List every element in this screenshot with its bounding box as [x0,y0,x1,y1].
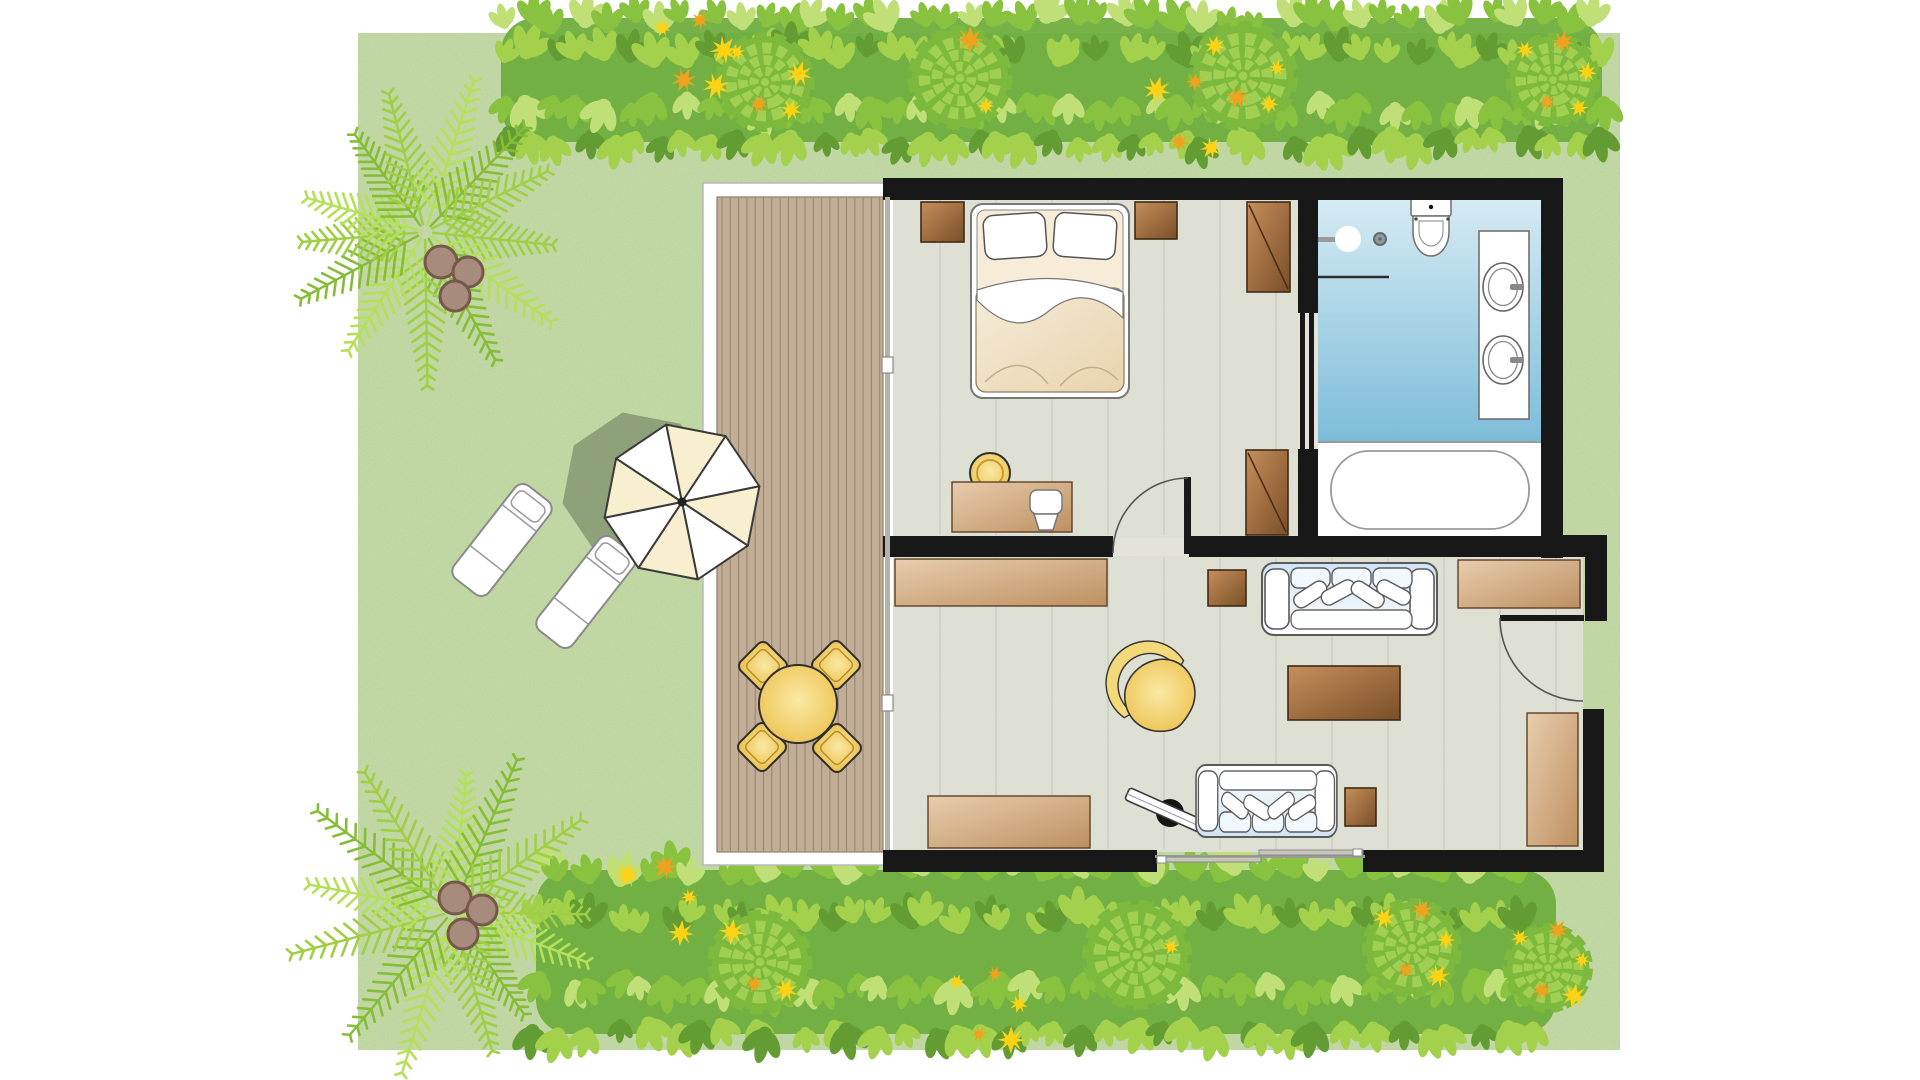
sofa-south [1196,765,1337,837]
tall-cabinet [1527,713,1578,846]
toilet [1411,199,1451,256]
floor-plan-canvas [0,0,1920,1080]
wardrobe-north [1247,202,1290,292]
outdoor-dining-table [759,665,837,743]
side-table-south [1345,788,1376,826]
double-bed [971,204,1129,398]
pillow-right [1053,212,1118,260]
sideboard-south [928,796,1090,848]
bathtub [1318,441,1541,537]
vanity-double-sink [1479,231,1529,419]
pillow-left [983,212,1048,260]
bathroom [1318,197,1541,537]
sideboard-north [895,559,1107,606]
coffee-table [1288,666,1400,720]
side-table-north [1208,570,1246,606]
nightstand-left [921,202,964,242]
console-table [1458,560,1580,608]
sofa-north [1262,563,1437,635]
wardrobe-south [1246,450,1288,535]
nightstand-right [1135,202,1177,239]
